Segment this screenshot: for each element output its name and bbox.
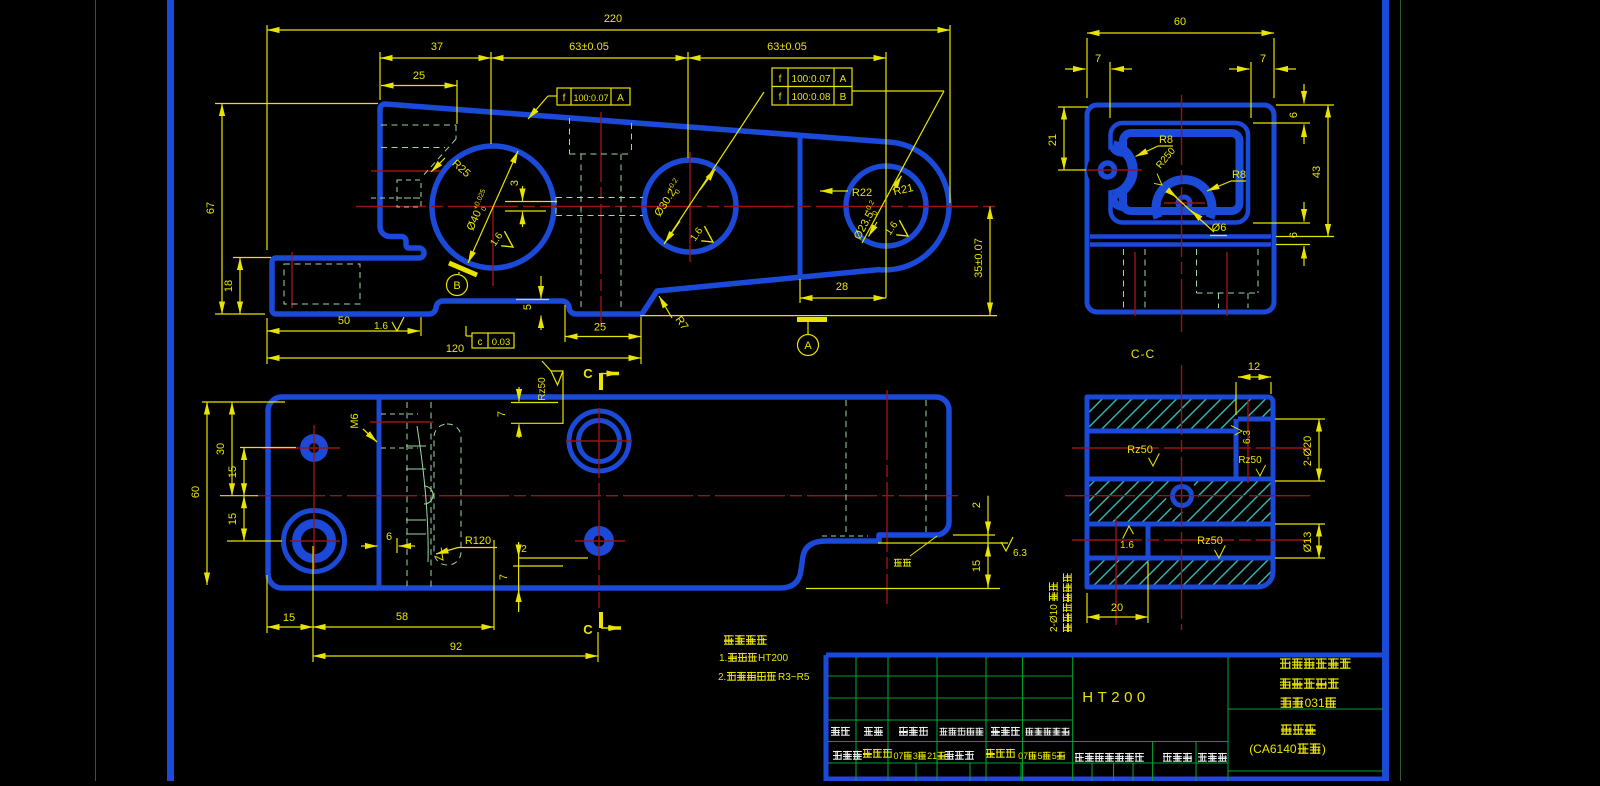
svg-text:7: 7: [1095, 53, 1101, 65]
svg-text:3: 3: [509, 180, 521, 186]
svg-text:6: 6: [1288, 232, 1300, 238]
svg-text:5: 5: [1038, 751, 1043, 761]
svg-text:Ø13: Ø13: [1302, 532, 1314, 553]
svg-text:R3~R5: R3~R5: [778, 672, 810, 683]
svg-text:30: 30: [215, 443, 227, 455]
svg-text:f: f: [779, 74, 782, 85]
svg-text:2: 2: [971, 502, 983, 508]
svg-text:21: 21: [927, 751, 937, 761]
svg-text:18: 18: [223, 280, 235, 292]
svg-text:50: 50: [338, 315, 350, 327]
svg-text:07: 07: [894, 751, 904, 761]
svg-text:15: 15: [227, 466, 239, 478]
svg-text:37: 37: [431, 41, 443, 53]
svg-text:f: f: [563, 93, 566, 104]
svg-text:100:0.08: 100:0.08: [792, 92, 831, 103]
svg-text:2-Ø20: 2-Ø20: [1302, 436, 1314, 467]
svg-text:100:0.07: 100:0.07: [573, 93, 608, 103]
svg-text:2: 2: [521, 544, 527, 555]
svg-text:21: 21: [1047, 134, 1059, 146]
svg-text:1.: 1.: [719, 653, 727, 664]
svg-text:6.3: 6.3: [1242, 430, 1253, 444]
svg-text:0.03: 0.03: [492, 337, 511, 348]
svg-text:Rz50: Rz50: [1238, 455, 1262, 466]
svg-text:f: f: [779, 92, 782, 103]
svg-text:C-C: C-C: [1131, 347, 1155, 361]
svg-text:B: B: [453, 280, 460, 292]
svg-text:43: 43: [1311, 166, 1323, 178]
svg-text:25: 25: [594, 322, 606, 334]
svg-text:C: C: [583, 622, 593, 637]
svg-text:7: 7: [498, 574, 510, 580]
svg-text:220: 220: [604, 13, 622, 25]
svg-text:A: A: [840, 74, 847, 85]
svg-text:Ø6: Ø6: [1212, 222, 1227, 234]
svg-text:6: 6: [1288, 112, 1300, 118]
svg-text:HT200: HT200: [758, 653, 788, 664]
svg-text:C: C: [583, 366, 593, 381]
svg-text:60: 60: [1174, 16, 1186, 28]
svg-text:3: 3: [913, 751, 918, 761]
svg-text:B: B: [840, 92, 847, 103]
svg-text:): ): [1322, 742, 1326, 756]
svg-text:07: 07: [1018, 751, 1028, 761]
svg-text:28: 28: [836, 281, 848, 293]
svg-text:(CA6140: (CA6140: [1249, 742, 1297, 756]
svg-text:M6: M6: [349, 413, 361, 428]
svg-text:R120: R120: [465, 535, 491, 547]
svg-text:HT200: HT200: [1082, 689, 1150, 706]
svg-text:R22: R22: [852, 187, 872, 199]
svg-text:Rz50: Rz50: [1197, 535, 1223, 547]
svg-text:R8: R8: [1159, 134, 1173, 146]
svg-text:58: 58: [396, 611, 408, 623]
svg-text:63±0.05: 63±0.05: [569, 41, 609, 53]
svg-text:031: 031: [1305, 696, 1325, 710]
svg-text:20: 20: [1111, 602, 1123, 614]
svg-text:15: 15: [971, 560, 983, 572]
svg-text:60: 60: [190, 486, 202, 498]
svg-text:Rz50: Rz50: [537, 377, 548, 401]
svg-text:7: 7: [1260, 53, 1266, 65]
svg-text:100:0.07: 100:0.07: [792, 74, 831, 85]
svg-text:1.6: 1.6: [1120, 540, 1134, 551]
svg-text:63±0.05: 63±0.05: [767, 41, 807, 53]
svg-text:67: 67: [205, 202, 217, 214]
svg-text:2-Ø10: 2-Ø10: [1049, 604, 1060, 632]
svg-text:35±0.07: 35±0.07: [973, 238, 985, 278]
svg-text:5: 5: [522, 304, 534, 310]
svg-text:R8: R8: [1232, 169, 1246, 181]
svg-text:120: 120: [446, 343, 464, 355]
svg-text:15: 15: [283, 612, 295, 624]
svg-text:12: 12: [1248, 361, 1260, 373]
svg-text:25: 25: [413, 70, 425, 82]
svg-text:5: 5: [1052, 751, 1057, 761]
svg-text:2.: 2.: [718, 672, 726, 683]
svg-text:6: 6: [386, 531, 392, 543]
svg-text:1.6: 1.6: [374, 321, 388, 332]
svg-text:c: c: [478, 337, 483, 348]
svg-text:A: A: [804, 340, 812, 352]
svg-text:15: 15: [227, 513, 239, 525]
svg-text:92: 92: [450, 641, 462, 653]
svg-text:A: A: [617, 93, 624, 104]
svg-text:6.3: 6.3: [1013, 548, 1027, 559]
svg-text:7: 7: [496, 411, 508, 417]
svg-text:Rz50: Rz50: [1127, 444, 1153, 456]
